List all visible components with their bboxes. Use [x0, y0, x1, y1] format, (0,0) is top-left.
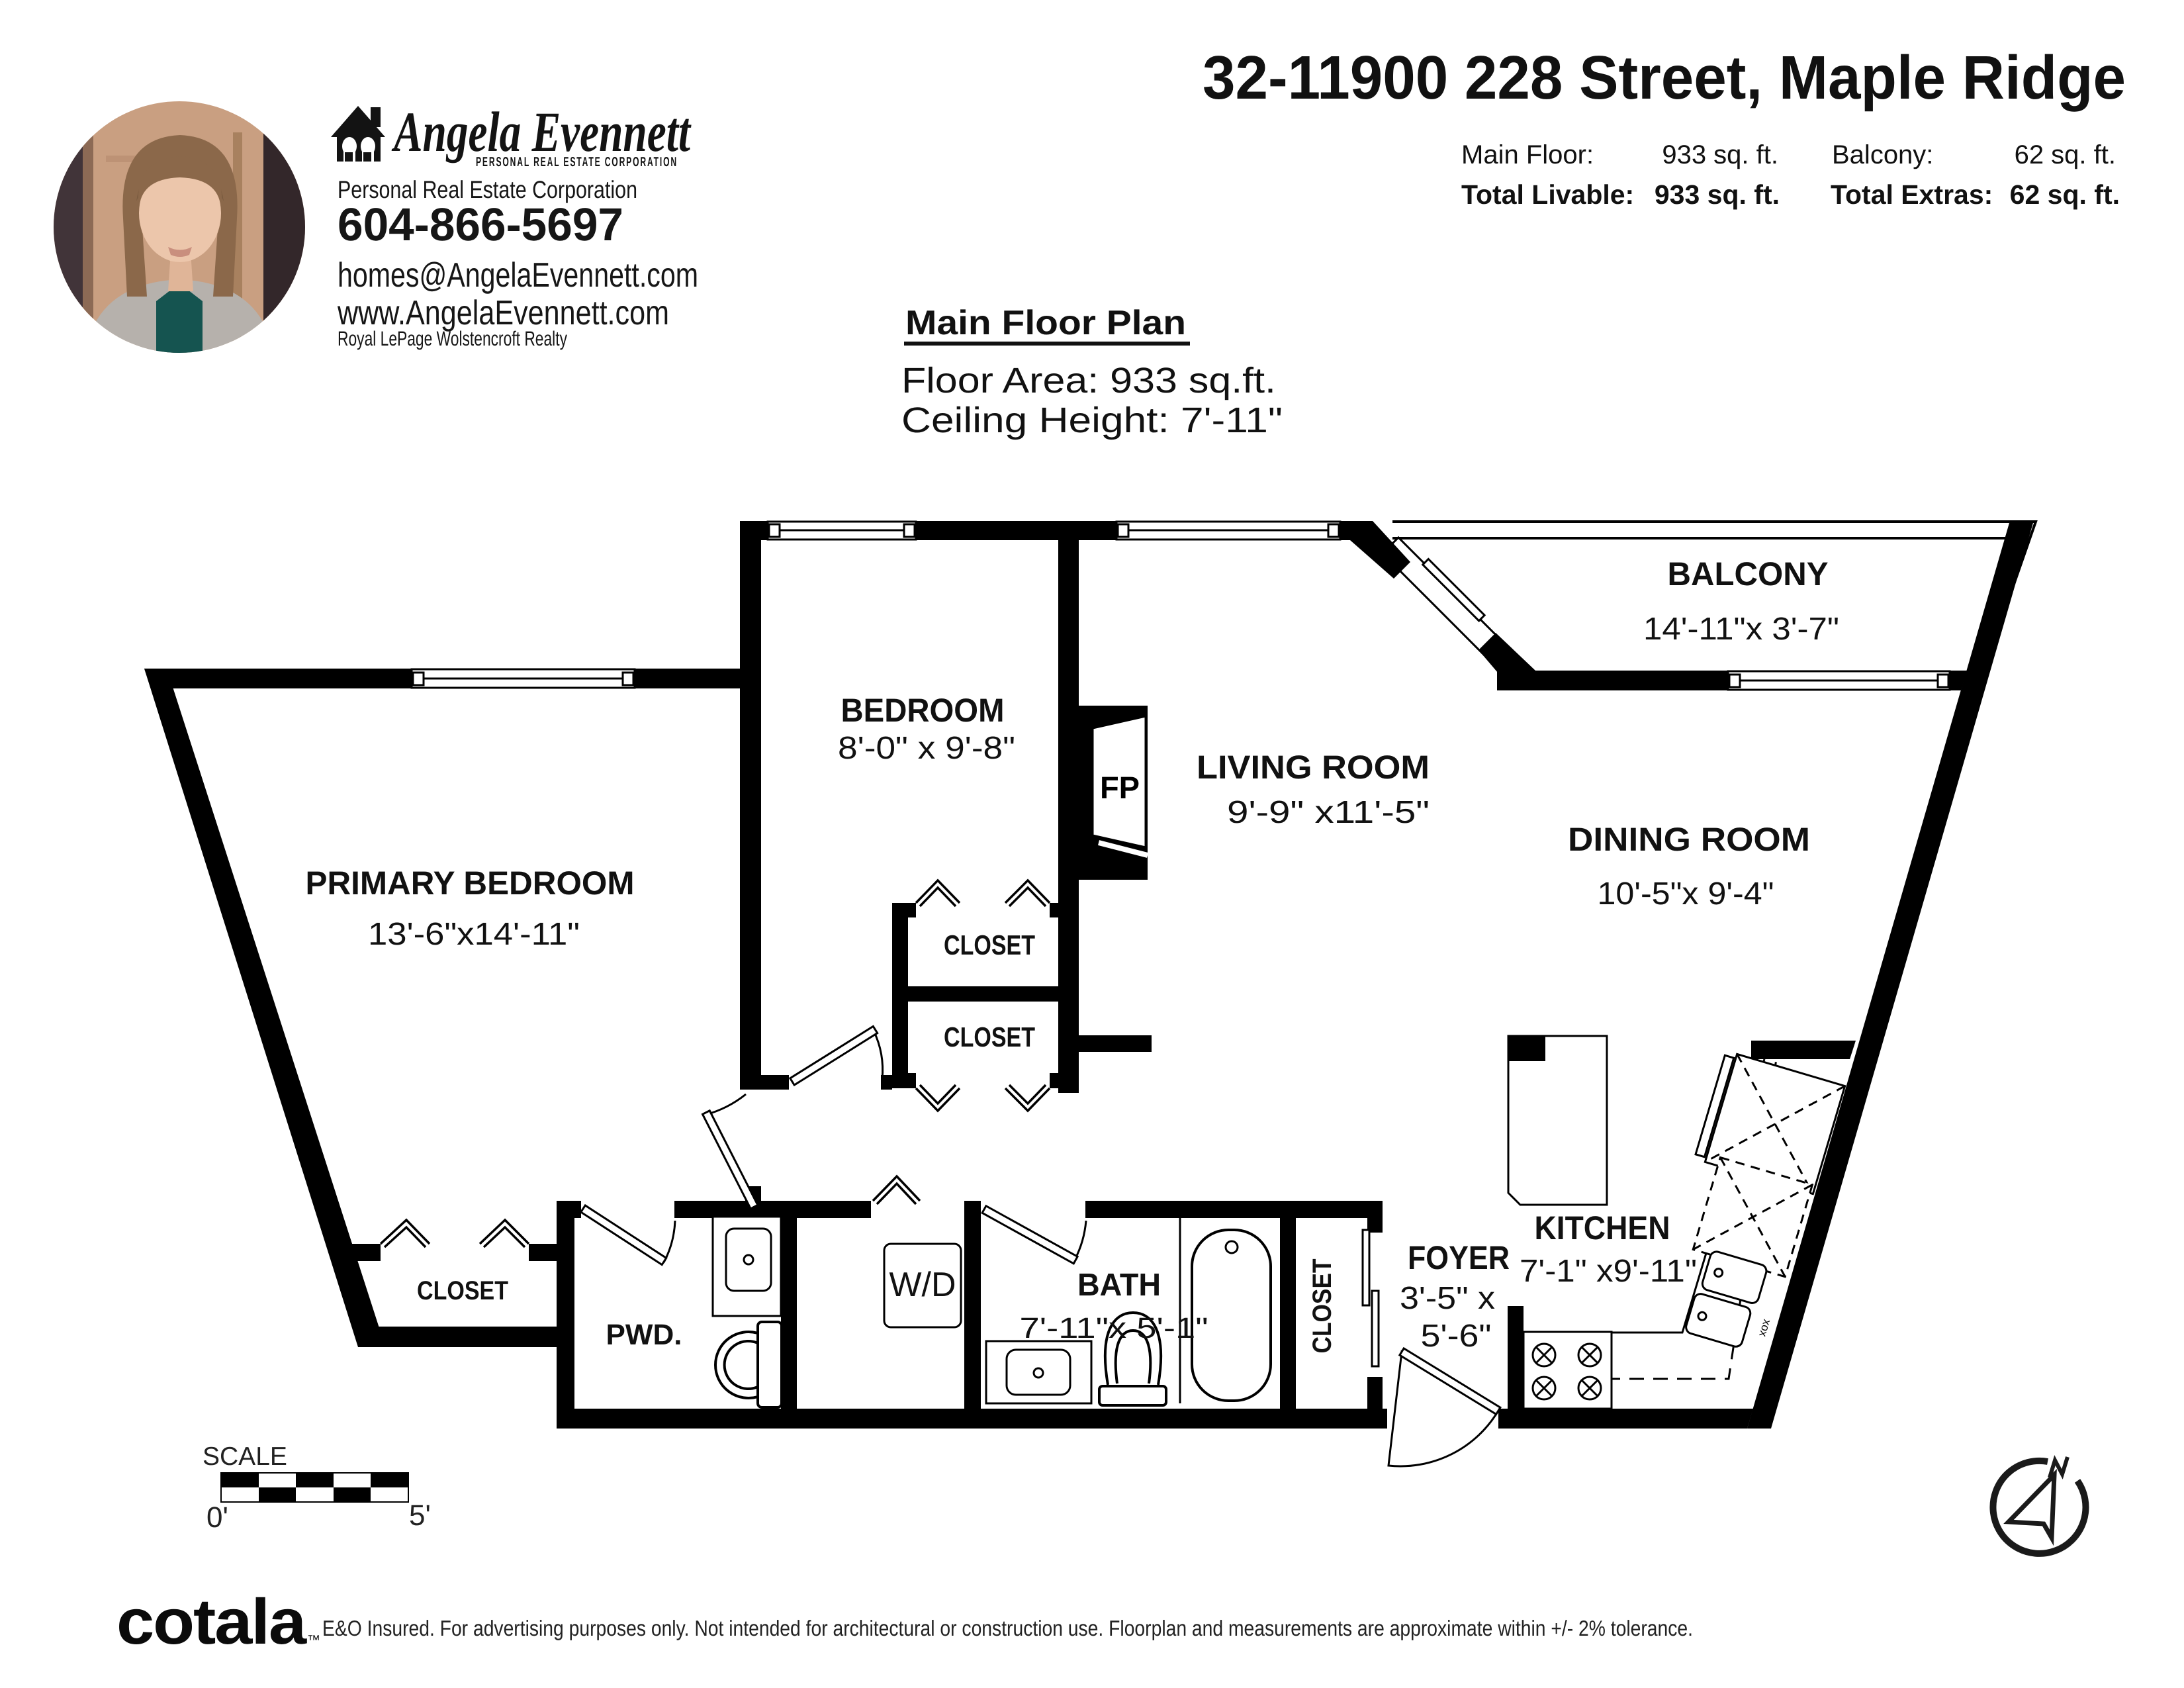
svg-text:8'-0" x 9'-8": 8'-0" x 9'-8" [838, 731, 1015, 766]
svg-text:BEDROOM: BEDROOM [841, 692, 1005, 729]
svg-text:0': 0' [206, 1501, 228, 1534]
svg-text:Total Livable:: Total Livable: [1461, 179, 1634, 210]
svg-text:™: ™ [307, 1633, 320, 1648]
svg-text:Angela Evennett: Angela Evennett [391, 100, 692, 164]
svg-text:E&O Insured. For advertising p: E&O Insured. For advertising purposes on… [322, 1616, 1693, 1640]
svg-text:14'-11"x 3'-7": 14'-11"x 3'-7" [1643, 612, 1839, 647]
svg-text:Floor Area: 933 sq.ft.: Floor Area: 933 sq.ft. [901, 361, 1276, 400]
svg-text:5': 5' [409, 1499, 431, 1532]
svg-text:62 sq. ft.: 62 sq. ft. [2010, 179, 2120, 210]
svg-text:13'-6"x14'-11": 13'-6"x14'-11" [368, 917, 580, 952]
svg-text:Main Floor Plan: Main Floor Plan [905, 304, 1186, 342]
svg-text:cotala: cotala [116, 1585, 307, 1658]
svg-text:KITCHEN: KITCHEN [1535, 1209, 1670, 1246]
svg-text:CLOSET: CLOSET [944, 1021, 1035, 1053]
svg-text:32-11900 228 Street, Maple Rid: 32-11900 228 Street, Maple Ridge [1203, 43, 2126, 112]
svg-text:3'-5" x: 3'-5" x [1400, 1281, 1495, 1316]
svg-text:PRIMARY BEDROOM: PRIMARY BEDROOM [306, 865, 635, 902]
svg-text:10'-5"x 9'-4": 10'-5"x 9'-4" [1598, 876, 1774, 912]
svg-text:5'-6": 5'-6" [1421, 1319, 1492, 1354]
svg-text:CLOSET: CLOSET [1308, 1259, 1337, 1354]
svg-text:CLOSET: CLOSET [417, 1276, 508, 1305]
svg-text:9'-9" x11'-5": 9'-9" x11'-5" [1227, 795, 1430, 830]
svg-text:62 sq. ft.: 62 sq. ft. [2015, 140, 2116, 169]
svg-text:933 sq. ft.: 933 sq. ft. [1662, 140, 1778, 169]
svg-text:BALCONY: BALCONY [1668, 555, 1829, 592]
svg-text:7'-1" x9'-11": 7'-1" x9'-11" [1520, 1254, 1697, 1289]
svg-text:Royal LePage Wolstencroft Real: Royal LePage Wolstencroft Realty [338, 327, 567, 350]
svg-text:Total Extras:: Total Extras: [1831, 179, 1993, 210]
svg-text:LIVING ROOM: LIVING ROOM [1197, 749, 1430, 786]
svg-text:CLOSET: CLOSET [944, 929, 1035, 961]
svg-text:PERSONAL REAL ESTATE CORPORATI: PERSONAL REAL ESTATE CORPORATION [476, 155, 678, 169]
svg-text:Ceiling Height: 7'-11": Ceiling Height: 7'-11" [901, 400, 1283, 440]
svg-text:SCALE: SCALE [203, 1442, 287, 1471]
svg-text:W/D: W/D [889, 1266, 956, 1304]
svg-text:FP: FP [1100, 770, 1140, 805]
svg-text:homes@AngelaEvennett.com: homes@AngelaEvennett.com [338, 256, 698, 295]
svg-text:Balcony:: Balcony: [1832, 140, 1933, 169]
svg-text:933 sq. ft.: 933 sq. ft. [1655, 179, 1780, 210]
svg-text:BATH: BATH [1077, 1268, 1161, 1303]
svg-text:PWD.: PWD. [606, 1319, 682, 1351]
svg-text:Main Floor:: Main Floor: [1461, 140, 1594, 169]
svg-text:604-866-5697: 604-866-5697 [338, 199, 623, 250]
svg-text:DINING ROOM: DINING ROOM [1568, 821, 1810, 858]
svg-text:7'-11"x 5'-1": 7'-11"x 5'-1" [1020, 1312, 1208, 1344]
svg-text:FOYER: FOYER [1408, 1239, 1510, 1276]
